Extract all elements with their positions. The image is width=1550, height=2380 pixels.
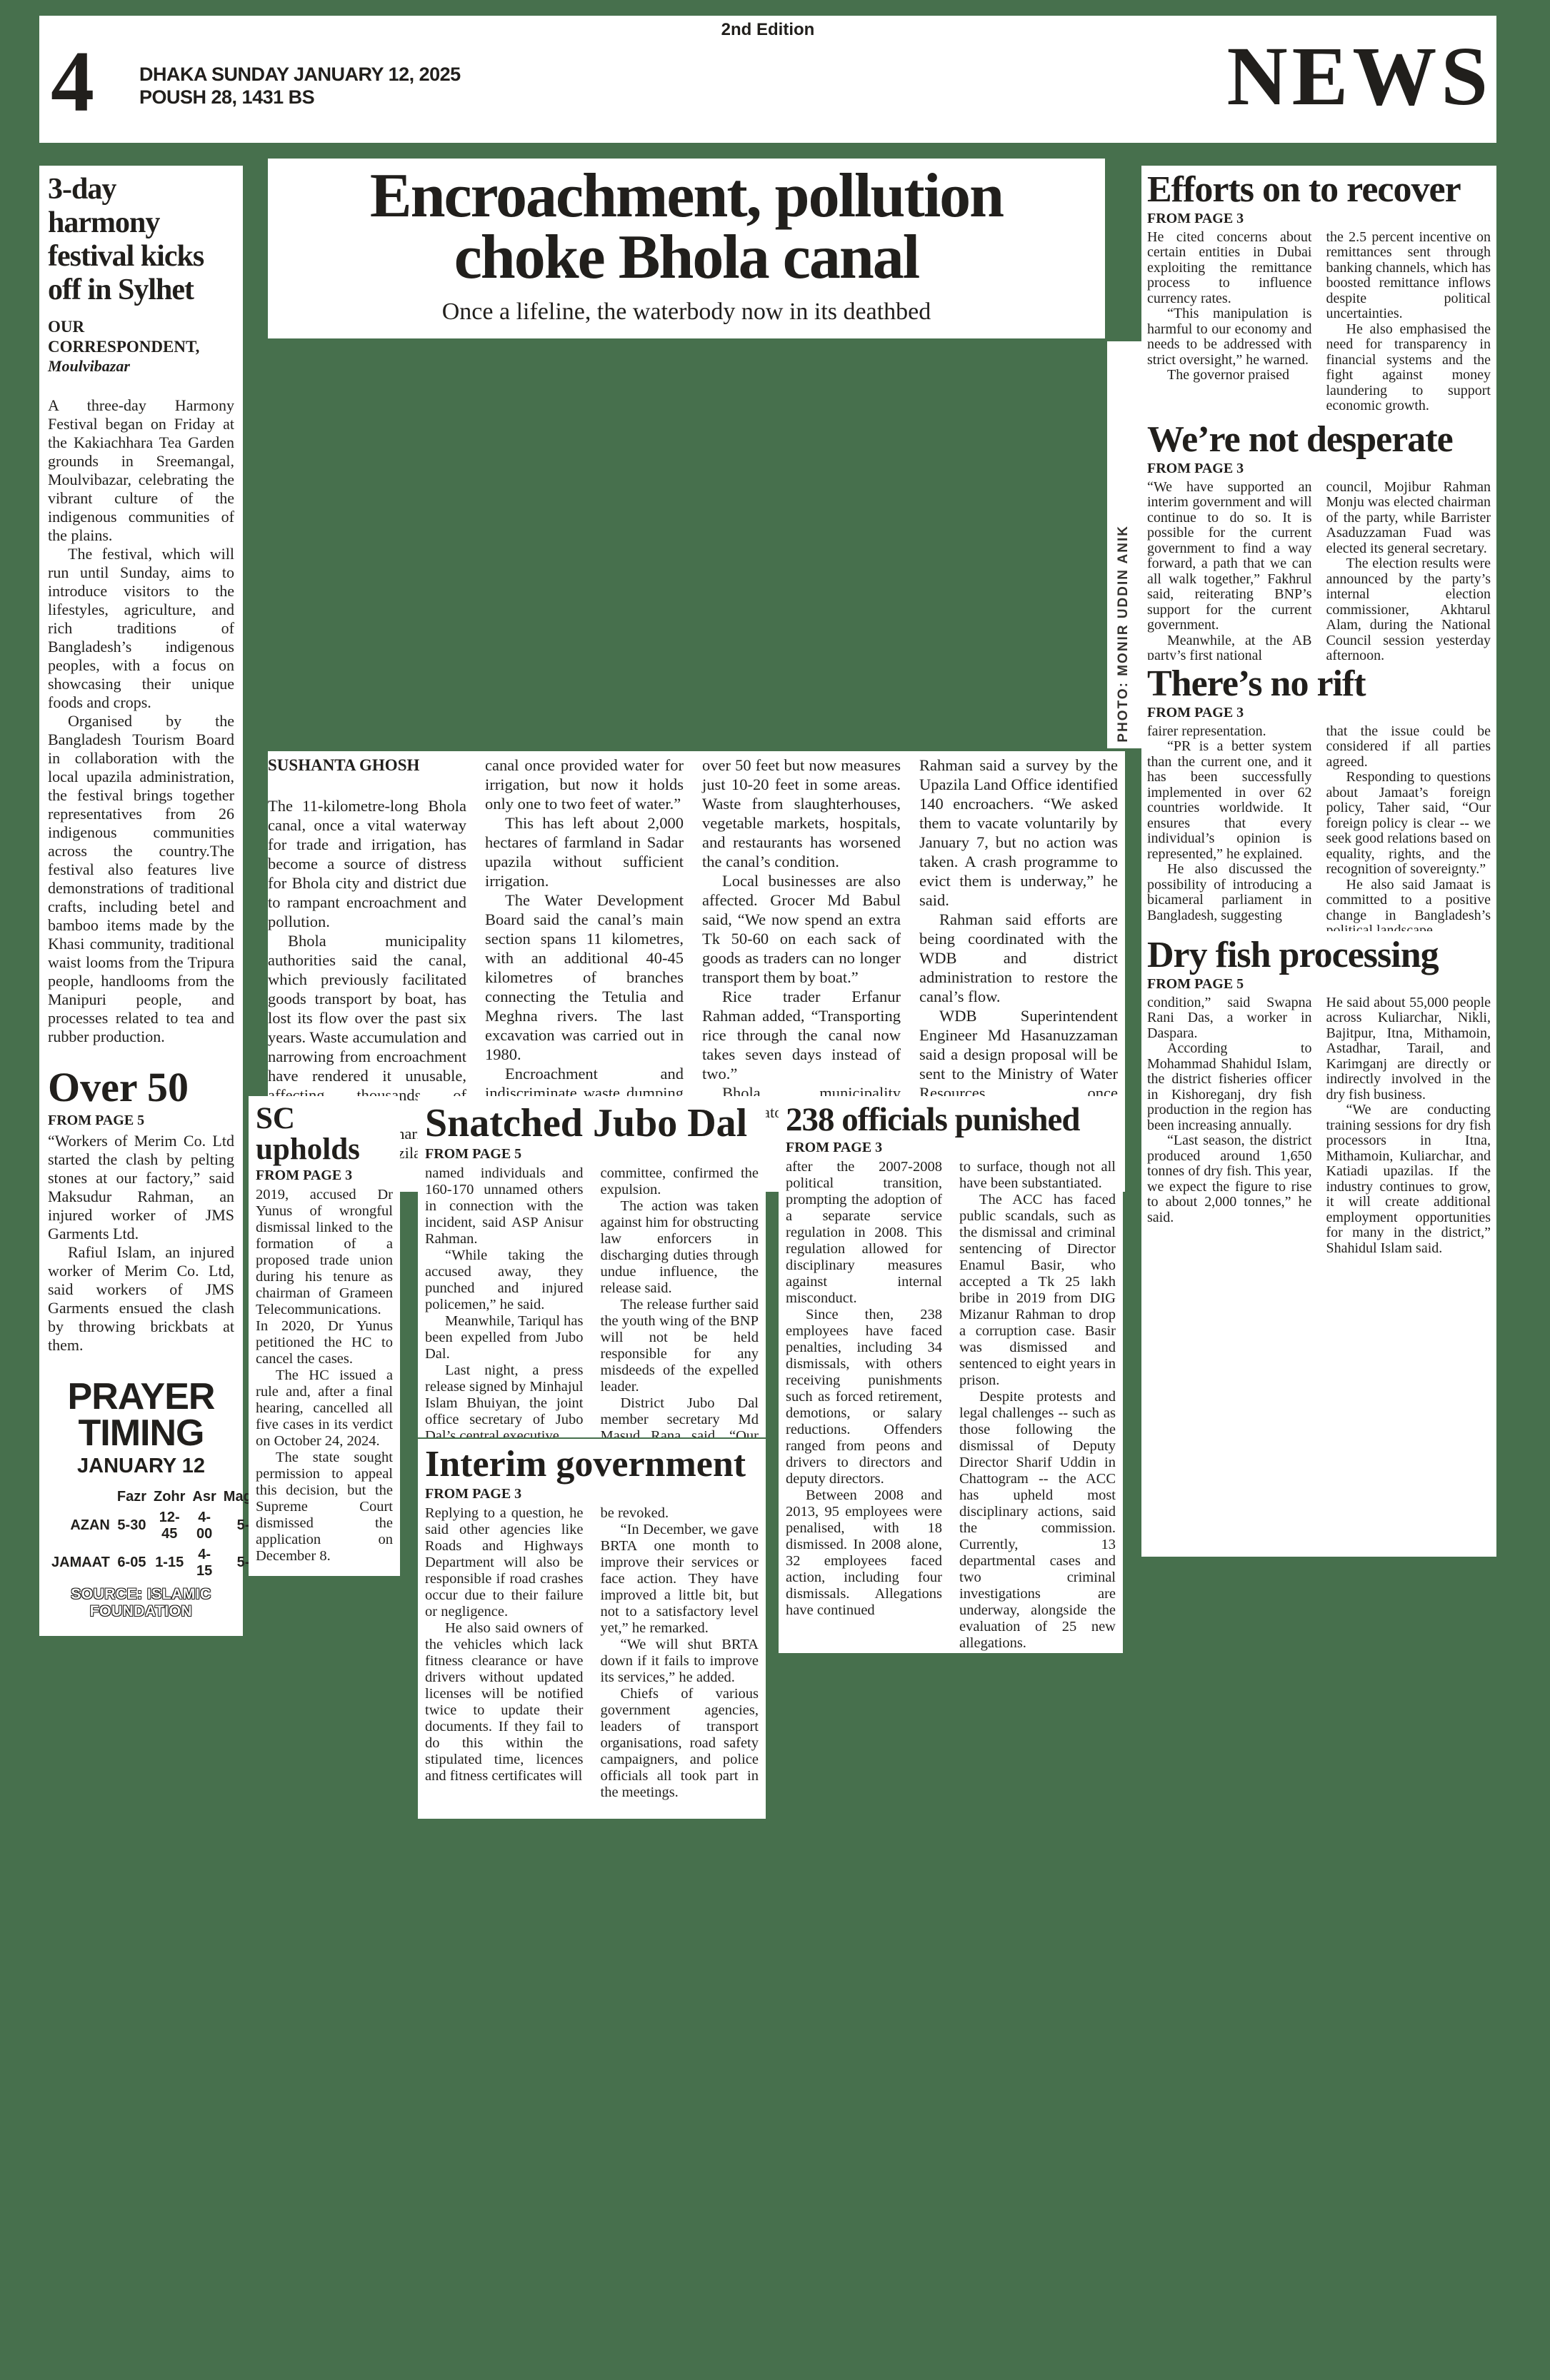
paragraph: Chiefs of various government agencies, l… xyxy=(601,1686,759,1801)
paragraph: “Workers of Merim Co. Ltd started the cl… xyxy=(48,1132,234,1243)
paragraph: Despite protests and legal challenges --… xyxy=(959,1389,1116,1652)
paragraph: Last night, a press release signed by Mi… xyxy=(425,1362,584,1437)
paragraph: He also said Jamaat is committed to a po… xyxy=(1326,878,1491,932)
article-family-members xyxy=(1141,1267,1496,1557)
paragraph: be revoked. xyxy=(601,1505,759,1522)
from-page-tag: FROM PAGE 5 xyxy=(48,1113,234,1129)
paragraph: over 50 feet but now measures just 10-20… xyxy=(702,755,901,871)
paragraph: “PR is a better system than the current … xyxy=(1147,739,1312,862)
paragraph: canal once provided water for irrigation… xyxy=(485,755,684,813)
paragraph: “We are conducting training sessions for… xyxy=(1326,1103,1491,1256)
article-title: Efforts on to recover xyxy=(1147,171,1491,209)
dateline-bengali: POUSH 28, 1431 BS xyxy=(139,86,461,109)
column-1: condition,” said Swapna Rani Das, a work… xyxy=(1147,995,1312,1257)
paragraph: The ACC has faced public scandals, such … xyxy=(959,1192,1116,1389)
column-2: the 2.5 percent incentive on remittances… xyxy=(1326,230,1491,414)
from-page-tag: FROM PAGE 5 xyxy=(1147,977,1491,993)
paragraph: The election results were announced by t… xyxy=(1326,556,1491,660)
paragraph: committee, confirmed the expulsion. xyxy=(601,1165,759,1198)
column-1: named individuals and 160-170 unnamed ot… xyxy=(425,1165,584,1437)
paragraph: Rahman said a survey by the Upazila Land… xyxy=(919,755,1118,910)
article-title: Dry fish processing xyxy=(1147,937,1491,974)
paragraph: the 2.5 percent incentive on remittances… xyxy=(1326,230,1491,322)
paragraph: “We will shut BRTA down if it fails to i… xyxy=(601,1637,759,1686)
paragraph: He also said owners of the vehicles whic… xyxy=(425,1620,584,1784)
paragraph: The action was taken against him for obs… xyxy=(601,1198,759,1297)
from-page-tag: FROM PAGE 3 xyxy=(256,1168,393,1184)
paragraph: Meanwhile, at the AB party’s first natio… xyxy=(1147,633,1312,661)
from-page-tag: FROM PAGE 3 xyxy=(786,1140,1116,1156)
paragraph: This has left about 2,000 hectares of fa… xyxy=(485,813,684,890)
article-snatched-jubo-dal: Snatched Jubo Dal FROM PAGE 5 named indi… xyxy=(418,1096,766,1437)
column-2: He said about 55,000 people across Kulia… xyxy=(1326,995,1491,1257)
paragraph: The governor praised xyxy=(1147,368,1312,383)
article-title: SC upholds xyxy=(256,1103,393,1165)
dateline-gregorian: DHAKA SUNDAY JANUARY 12, 2025 xyxy=(139,63,461,86)
paragraph: The Water Development Board said the can… xyxy=(485,890,684,1064)
from-page-tag: FROM PAGE 3 xyxy=(1147,706,1491,721)
col-fazr: Fazr xyxy=(114,1487,150,1507)
paragraph: He cited concerns about certain entities… xyxy=(1147,230,1312,307)
lead-headline-block: Encroachment, pollution choke Bhola cana… xyxy=(268,159,1105,338)
paragraph: The release further said the youth wing … xyxy=(601,1297,759,1395)
paragraph: Replying to a question, he said other ag… xyxy=(425,1505,584,1620)
lead-byline: SUSHANTA GHOSH xyxy=(268,755,466,775)
article-sc-upholds: SC upholds FROM PAGE 3 2019, accused Dr … xyxy=(249,1096,400,1576)
from-page-tag: FROM PAGE 3 xyxy=(425,1486,759,1502)
article-harmony-festival: 3-day harmony festival kicks off in Sylh… xyxy=(48,173,234,1046)
paragraph: “While taking the accused away, they pun… xyxy=(425,1247,584,1313)
column-1: He cited concerns about certain entities… xyxy=(1147,230,1312,414)
article-not-desperate: We’re not desperate FROM PAGE 3 “We have… xyxy=(1141,416,1496,660)
paragraph: He also emphasised the need for transpar… xyxy=(1326,322,1491,414)
from-page-tag: FROM PAGE 3 xyxy=(1147,211,1491,227)
paragraph: Organised by the Bangladesh Tourism Boar… xyxy=(48,712,234,1046)
article-efforts-to-recover: Efforts on to recover FROM PAGE 3 He cit… xyxy=(1141,166,1496,416)
article-title: 3-day harmony festival kicks off in Sylh… xyxy=(48,173,234,307)
paragraph: Bhola municipality authorities said the … xyxy=(268,931,466,1124)
paragraph: Local businesses are also affected. Groc… xyxy=(702,871,901,987)
article-body: A three-day Harmony Festival began on Fr… xyxy=(48,396,234,1046)
paragraph: He also discussed the possibility of int… xyxy=(1147,862,1312,923)
article-dry-fish: Dry fish processing FROM PAGE 5 conditio… xyxy=(1141,931,1496,1267)
paragraph: The festival, which will run until Sunda… xyxy=(48,545,234,712)
article-over-50: Over 50 FROM PAGE 5 “Workers of Merim Co… xyxy=(48,1065,234,1355)
article-title: Interim government xyxy=(425,1446,759,1483)
paragraph: He said about 55,000 people across Kulia… xyxy=(1326,995,1491,1103)
column-2: that the issue could be considered if al… xyxy=(1326,724,1491,932)
article-no-rift: There’s no rift FROM PAGE 3 fairer repre… xyxy=(1141,660,1496,931)
right-column: Efforts on to recover FROM PAGE 3 He cit… xyxy=(1141,166,1496,1557)
column-1: after the 2007-2008 political transition… xyxy=(786,1159,942,1652)
prayer-date: JANUARY 12 xyxy=(48,1455,234,1478)
left-column: 3-day harmony festival kicks off in Sylh… xyxy=(39,166,243,1636)
paragraph: A three-day Harmony Festival began on Fr… xyxy=(48,396,234,545)
paragraph: According to Mohammad Shahidul Islam, th… xyxy=(1147,1041,1312,1133)
paragraph: “Last season, the district produced arou… xyxy=(1147,1133,1312,1225)
article-interim-government: Interim government FROM PAGE 3 Replying … xyxy=(418,1439,766,1819)
article-body: “Workers of Merim Co. Ltd started the cl… xyxy=(48,1132,234,1355)
column-2: committee, confirmed the expulsion.The a… xyxy=(601,1165,759,1437)
article-title: Snatched Jubo Dal xyxy=(425,1103,759,1143)
paragraph: named individuals and 160-170 unnamed ot… xyxy=(425,1165,584,1247)
lead-headline: Encroachment, pollution choke Bhola cana… xyxy=(268,166,1105,288)
col-asr: Asr xyxy=(189,1487,219,1507)
column-2: council, Mojibur Rahman Monju was electe… xyxy=(1326,480,1491,661)
paragraph: “We have supported an interim government… xyxy=(1147,480,1312,633)
from-page-tag: FROM PAGE 3 xyxy=(1147,461,1491,477)
prayer-timing-box: PRAYER TIMING JANUARY 12 Fazr Zohr Asr M… xyxy=(48,1379,234,1620)
lead-photo-placeholder xyxy=(268,341,1104,748)
column-1: fairer representation.“PR is a better sy… xyxy=(1147,724,1312,932)
article-238-officials: 238 officials punished FROM PAGE 3 after… xyxy=(779,1096,1123,1653)
paragraph: “In December, we gave BRTA one month to … xyxy=(601,1522,759,1637)
paragraph: 2019, accused Dr Yunus of wrongful dismi… xyxy=(256,1187,393,1367)
article-title: We’re not desperate xyxy=(1147,421,1491,458)
paragraph: District Jubo Dal member secretary Md Ma… xyxy=(601,1395,759,1437)
paragraph: fairer representation. xyxy=(1147,724,1312,740)
paragraph: Rice trader Erfanur Rahman added, “Trans… xyxy=(702,987,901,1083)
paragraph: to surface, though not all have been sub… xyxy=(959,1159,1116,1192)
article-title: Over 50 xyxy=(48,1065,234,1111)
paragraph: Between 2008 and 2013, 95 employees were… xyxy=(786,1487,942,1619)
prayer-title-line2: TIMING xyxy=(48,1415,234,1452)
page-header: 2nd Edition 4 DHAKA SUNDAY JANUARY 12, 2… xyxy=(39,16,1496,143)
column-2: be revoked.“In December, we gave BRTA on… xyxy=(601,1505,759,1801)
photo-credit: PHOTO: MONIR UDDIN ANIK xyxy=(1107,341,1141,748)
column-1: Replying to a question, he said other ag… xyxy=(425,1505,584,1801)
prayer-source: SOURCE: ISLAMIC FOUNDATION xyxy=(48,1586,234,1620)
lead-subtitle: Once a lifeline, the waterbody now in it… xyxy=(268,300,1105,324)
paragraph: Since then, 238 employees have faced pen… xyxy=(786,1307,942,1487)
paragraph: council, Mojibur Rahman Monju was electe… xyxy=(1326,480,1491,557)
article-body: 2019, accused Dr Yunus of wrongful dismi… xyxy=(256,1187,393,1565)
row-label: AZAN xyxy=(48,1507,114,1545)
byline: OUR CORRESPONDENT, Moulvibazar xyxy=(48,317,234,376)
column-2: to surface, though not all have been sub… xyxy=(959,1159,1116,1652)
prayer-title-line1: PRAYER xyxy=(48,1379,234,1415)
article-title: 238 officials punished xyxy=(786,1103,1116,1137)
paragraph: Responding to questions about Jamaat’s f… xyxy=(1326,770,1491,878)
newspaper-page: { "page": { "edition": "2nd Edition", "p… xyxy=(0,0,1550,2380)
paragraph: The 11-kilometre-long Bhola canal, once … xyxy=(268,796,466,931)
paragraph: Rahman said efforts are being coordinate… xyxy=(919,910,1118,1006)
paragraph: “This manipulation is harmful to our eco… xyxy=(1147,306,1312,368)
from-page-tag: FROM PAGE 5 xyxy=(425,1146,759,1163)
paragraph: condition,” said Swapna Rani Das, a work… xyxy=(1147,995,1312,1042)
paragraph: that the issue could be considered if al… xyxy=(1326,724,1491,770)
article-title: There’s no rift xyxy=(1147,666,1491,703)
masthead: NEWS xyxy=(1226,34,1492,119)
column-1: “We have supported an interim government… xyxy=(1147,480,1312,661)
paragraph: The state sought permission to appeal th… xyxy=(256,1450,393,1565)
page-number: 4 xyxy=(51,43,94,121)
paragraph: The HC issued a rule and, after a final … xyxy=(256,1367,393,1450)
paragraph: Rafiul Islam, an injured worker of Merim… xyxy=(48,1243,234,1355)
paragraph: after the 2007-2008 political transition… xyxy=(786,1159,942,1307)
dateline: DHAKA SUNDAY JANUARY 12, 2025 POUSH 28, … xyxy=(139,63,461,109)
row-label: JAMAAT xyxy=(48,1545,114,1582)
byline-place: Moulvibazar xyxy=(48,357,130,375)
byline-name: OUR CORRESPONDENT, xyxy=(48,318,199,356)
col-zohr: Zohr xyxy=(150,1487,189,1507)
paragraph: Meanwhile, Tariqul has been expelled fro… xyxy=(425,1313,584,1362)
